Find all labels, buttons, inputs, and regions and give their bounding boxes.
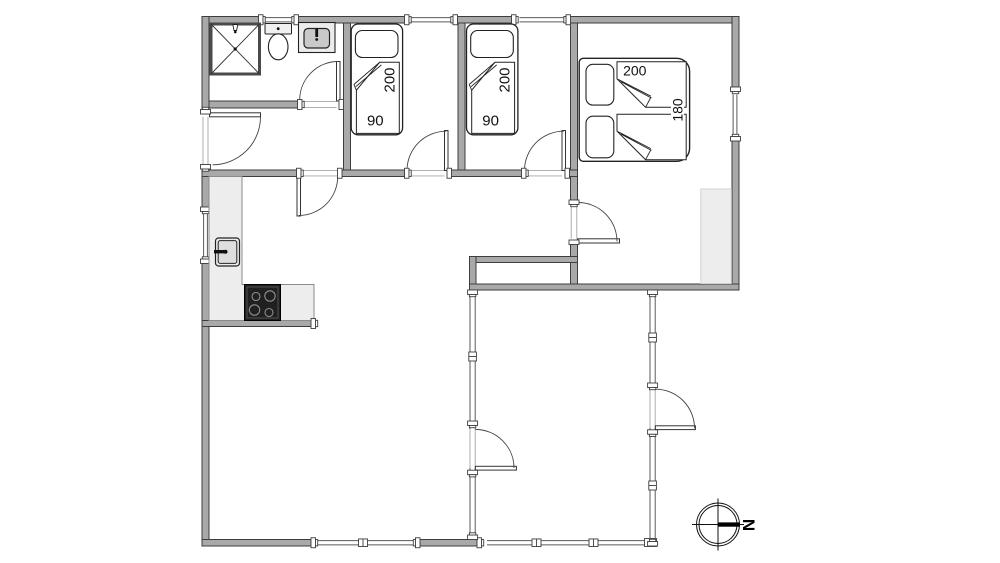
svg-text:200: 200 (381, 67, 398, 92)
svg-text:200: 200 (623, 63, 647, 79)
svg-text:90: 90 (482, 113, 499, 130)
svg-text:90: 90 (367, 113, 384, 130)
svg-text:180: 180 (670, 98, 686, 122)
svg-text:N: N (739, 519, 758, 531)
svg-text:200: 200 (497, 67, 514, 92)
